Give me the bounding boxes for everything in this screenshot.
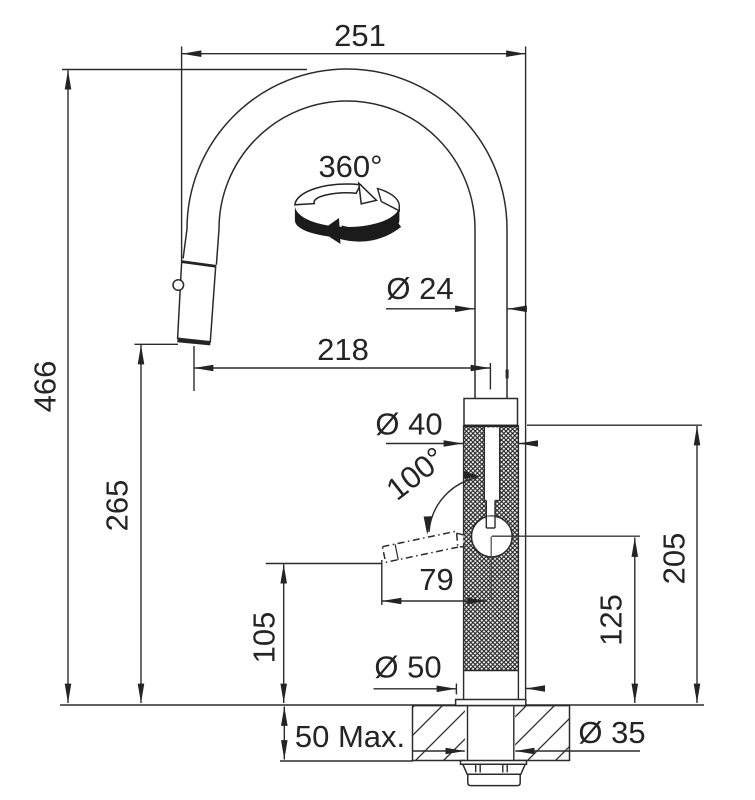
svg-text:466: 466 xyxy=(28,361,63,413)
svg-text:218: 218 xyxy=(317,332,369,367)
svg-text:100°: 100° xyxy=(380,440,452,507)
svg-text:Ø 50: Ø 50 xyxy=(374,650,441,685)
svg-text:125: 125 xyxy=(594,594,629,646)
svg-text:265: 265 xyxy=(100,480,135,532)
svg-text:79: 79 xyxy=(419,562,453,597)
svg-text:Ø 24: Ø 24 xyxy=(386,271,453,306)
svg-text:360°: 360° xyxy=(318,149,382,184)
svg-text:205: 205 xyxy=(657,533,692,585)
svg-text:Ø 40: Ø 40 xyxy=(375,407,442,442)
svg-text:50 Max.: 50 Max. xyxy=(295,719,405,754)
svg-text:Ø 35: Ø 35 xyxy=(578,715,645,750)
svg-text:105: 105 xyxy=(247,612,282,664)
svg-text:251: 251 xyxy=(334,18,386,53)
